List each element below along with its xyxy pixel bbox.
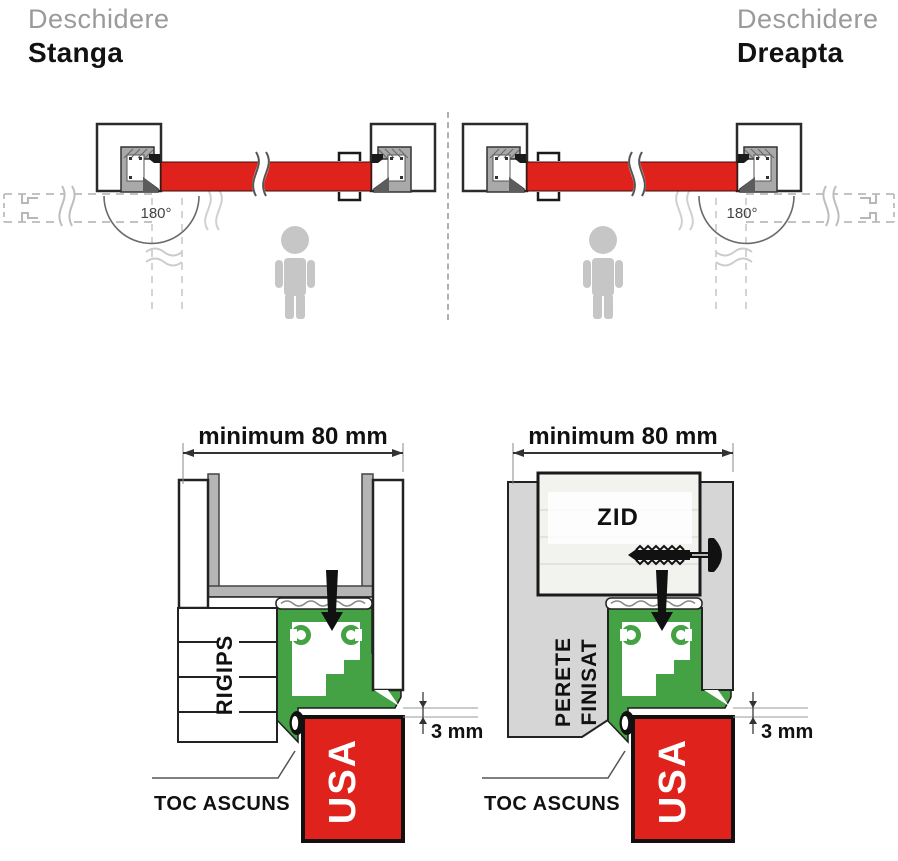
frame-label: TOC ASCUNS [154, 793, 290, 815]
door-label: USA [322, 738, 364, 824]
door-plan-group-mirrored [463, 124, 894, 319]
section-diagram-rigips: RIGIPS USA 3 mm TOC ASCUNS m [140, 420, 485, 861]
title-left-subtitle: Deschidere [28, 4, 170, 36]
plan-diagram-left: 180° [0, 110, 450, 334]
title-right: Deschidere Dreapta [737, 4, 879, 69]
swing-angle-label-left: 180° [140, 205, 171, 222]
masonry-core: ZID [538, 473, 700, 595]
stud-board-left [179, 480, 208, 608]
title-left: Deschidere Stanga [28, 4, 170, 69]
person-icon [275, 226, 315, 319]
swing-angle-label-right: 180° [726, 205, 757, 222]
wall-label-line2: FINISAT [578, 638, 601, 725]
section-diagram-masonry: ZID PERETE FINISAT [470, 420, 815, 861]
frame-callout: TOC ASCUNS [152, 751, 295, 815]
hinge-pin [292, 716, 298, 730]
stud-board-right [373, 480, 403, 690]
adhesive-strip [276, 598, 372, 609]
title-left-main: Stanga [28, 36, 170, 69]
metal-track [208, 474, 373, 597]
plan-diagram-right: 180° [448, 110, 898, 334]
title-right-subtitle: Deschidere [737, 4, 879, 36]
masonry-label: ZID [597, 504, 639, 531]
rigips-label: RIGIPS [212, 635, 237, 716]
door-plan-group [4, 124, 435, 319]
title-right-main: Dreapta [737, 36, 879, 69]
page: { "header": { "left": { "subtitle": "Des… [0, 0, 898, 861]
wall-label-line1: PERETE [552, 637, 575, 727]
width-dimension-label: minimum 80 mm [198, 423, 387, 450]
